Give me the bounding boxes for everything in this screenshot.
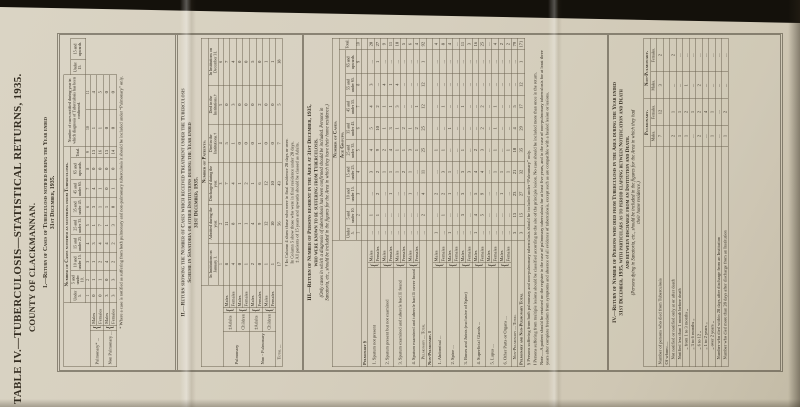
row-died-more-28: Number who died more than 28 days after … xyxy=(722,38,729,367)
group-header-patients: Number of Patients. xyxy=(201,38,208,285)
group-header-age-groups: Age Groups. xyxy=(339,50,346,240)
cell: Pulmonary xyxy=(223,332,249,367)
section4-italic-note2: their home residence.) xyxy=(637,38,642,367)
cell: Pulmonary* ... xyxy=(90,330,103,367)
cell: { xyxy=(381,263,394,268)
col-header: Under 5. xyxy=(71,289,86,303)
section4: IV.—Return of Number of Persons who died… xyxy=(607,35,781,370)
col-header: Under 15. xyxy=(71,60,86,75)
cell: 14 xyxy=(110,146,117,158)
cell: Pulmonary and Non-Pulmonary Total xyxy=(518,240,525,367)
cell: 17 xyxy=(518,96,525,118)
row-nonpulmonary-females: Females332230101400 xyxy=(110,38,117,367)
cell: 0 xyxy=(110,75,117,110)
col-header: 25 and under 35. xyxy=(71,216,86,234)
corner-cell xyxy=(64,303,90,367)
cell: 3. Bones and Joints (exclusive of Spine) xyxy=(459,268,472,367)
cell: Females xyxy=(110,303,117,326)
col-header: 55 and under 65. xyxy=(346,74,356,96)
col-header: 45 and under 55. xyxy=(346,96,356,118)
cell: Non Pulmonary ... xyxy=(103,330,116,367)
cell: 6. Other Parts or Organs ... xyxy=(498,268,511,367)
cell: 1. Sputum not present xyxy=(368,268,381,367)
col-header: 15 and under 25. xyxy=(71,234,86,252)
cell: { xyxy=(90,325,103,330)
col-header: Under 5. xyxy=(346,225,356,240)
cell: { xyxy=(249,308,262,313)
cell: 1 xyxy=(518,50,525,74)
cell: 56 xyxy=(276,204,283,243)
row-total: Total ...1756437518 xyxy=(276,38,283,367)
table-notified-cases-table: Number of Cases notified as suffering fr… xyxy=(64,38,117,367)
cell: { xyxy=(263,308,276,313)
cell: Total ... xyxy=(276,285,283,367)
document-title: TABLE IV.—TUBERCULOSIS—STATISTICAL RETUR… xyxy=(11,11,24,404)
group-header-number-of-cases: Number of Cases. xyxy=(332,38,339,240)
section2-footnote3: ‡ All patients of 15 years and upwards s… xyxy=(295,38,300,367)
cell: { xyxy=(485,263,498,268)
section3: III.—Return of Number of Persons residen… xyxy=(302,35,607,370)
cell: 5. Lupus ... xyxy=(485,268,498,367)
cell: { xyxy=(368,263,381,268)
cell: { xyxy=(498,263,511,268)
cell: ... xyxy=(722,72,729,99)
cell: 0 xyxy=(110,198,117,216)
section2-heading-line3: 31st December, 1935. xyxy=(193,38,199,367)
cell: Children xyxy=(263,313,276,332)
col-header: Admitted during the year. xyxy=(208,204,218,243)
cell: { xyxy=(394,263,407,268)
cell: 3 xyxy=(110,271,117,289)
group-header-notified: Number of Cases notified as suffering fr… xyxy=(64,146,71,302)
col-header: 5 and under 10. xyxy=(346,205,356,226)
col-header: Total. xyxy=(71,146,86,158)
col-header: Died in the Institutions.† xyxy=(208,85,218,124)
header-row: Number of Patients. xyxy=(201,38,208,367)
document-subtitle: COUNTY OF CLACKMANNAN. xyxy=(28,11,38,332)
cell: 0 xyxy=(110,158,117,179)
section3-italic-note2: Sanatoria, etc., should be included in t… xyxy=(325,38,330,367)
cell: 3 xyxy=(110,289,117,303)
cell: Number who died more than 28 days after … xyxy=(722,147,729,367)
cell: 2 xyxy=(722,99,729,126)
table-register-age-groups: Number of Cases.Age Groups.Total.Under 5… xyxy=(332,38,525,367)
cell: 35 xyxy=(518,139,525,161)
cell: 5 xyxy=(276,85,283,124)
section3-footnote1: § Persons suffering from both pulmonary … xyxy=(526,40,532,365)
corner-cell xyxy=(644,147,657,367)
section1-heading-line2: 31st December, 1935. xyxy=(49,33,56,372)
col-header: In Institutions on December 31. xyxy=(208,38,218,85)
cell: { xyxy=(433,263,446,268)
cell: 18 xyxy=(276,38,283,85)
corner-cell xyxy=(332,240,361,367)
section1: Number of Cases notified as suffering fr… xyxy=(60,35,176,370)
cell: Non - Pulmonary xyxy=(249,332,275,367)
table-institution-treatment-table: Number of Patients.In Institutions on Ja… xyxy=(201,38,282,367)
table-notified-cases: Number of Cases notified as suffering fr… xyxy=(64,38,117,367)
cell: 1. Abdominal ... xyxy=(433,268,446,367)
cell: 4. Superficial Glands ... xyxy=(472,268,485,367)
cell: 7 xyxy=(276,124,283,163)
table-frame: Number of Cases notified as suffering fr… xyxy=(58,33,783,372)
cell: 171 xyxy=(518,38,525,50)
table-register-age-groups-table: Number of Cases.Age Groups.Total.Under 5… xyxy=(332,38,525,367)
cell: 3 xyxy=(518,225,525,240)
cell: 29 xyxy=(518,117,525,139)
cell: 15 xyxy=(518,205,525,226)
section1-footnote: * Where a case is notified as suffering … xyxy=(118,38,123,367)
table-deaths-table: Pulmonary.Non-Pulmonary.Males.Females.Ma… xyxy=(643,38,728,367)
group-header-nonpulmonary: Non-Pulmonary. xyxy=(644,38,651,98)
col-header: 15 and upwards. xyxy=(71,38,86,60)
cell: 0 xyxy=(110,110,117,146)
cell: Children xyxy=(236,313,249,332)
cell: { xyxy=(223,308,236,313)
cell: 2 xyxy=(110,234,117,252)
col-header: In Institutions on January 1. xyxy=(208,243,218,285)
cell: ‡Adults xyxy=(223,313,236,332)
cell: 1 xyxy=(722,125,729,146)
cell: ... xyxy=(722,38,729,72)
scanned-document-page: { "page": { "title": "TABLE IV.—TUBERCUL… xyxy=(0,0,800,407)
col-header: 25 and under 35. xyxy=(346,139,356,161)
row-grand-total: Pulmonary and Non-Pulmonary Total3152732… xyxy=(518,38,525,367)
col-header: 45 and under 65. xyxy=(71,179,86,197)
cell: 17 xyxy=(276,243,283,285)
rotated-document-content: TABLE IV.—TUBERCULOSIS—STATISTICAL RETUR… xyxy=(0,11,800,407)
col-header: 5 and under 10. xyxy=(71,271,86,289)
col-header: 10 and under 15. xyxy=(346,183,356,205)
cell: { xyxy=(407,263,420,268)
cell: 3 xyxy=(110,216,117,234)
cell: { xyxy=(472,263,485,268)
group-header-pulmonary: Pulmonary. xyxy=(644,99,651,147)
cell: 3. Sputum examined and tubercle bacilli … xyxy=(394,268,407,367)
cell: 2 xyxy=(110,253,117,271)
header-row: Pulmonary.Non-Pulmonary. xyxy=(644,38,651,367)
col-header: 65 and upwards. xyxy=(71,158,86,179)
col-header: 10 and under 15. xyxy=(71,253,86,271)
header-row: Number of Cases. xyxy=(332,38,339,367)
cell: { xyxy=(103,325,116,330)
cell: 43 xyxy=(276,163,283,205)
cell: { xyxy=(446,263,459,268)
col-header: 15 and under 25. xyxy=(346,161,356,183)
cell: 2. Spine ... xyxy=(446,268,459,367)
col-header: Total. xyxy=(339,38,356,50)
section1-heading: I.—Return of Cases of Tuberculosis notif… xyxy=(42,33,56,372)
header-row: Number of Cases notified as suffering fr… xyxy=(64,38,71,367)
table-deaths: Pulmonary.Non-Pulmonary.Males.Females.Ma… xyxy=(643,38,728,367)
cell: 4. Sputum examined and tubercle bacilli … xyxy=(407,268,420,367)
col-header: 35 and under 45. xyxy=(71,198,86,216)
section3-footnote2: ‖ Persons suffering from multiple lesion… xyxy=(532,40,538,365)
cell: { xyxy=(236,308,249,313)
cell: 32 xyxy=(518,161,525,183)
cell: 12 xyxy=(518,74,525,96)
cell: 1 xyxy=(110,179,117,197)
section1-heading-line1: I.—Return of Cases of Tuberculosis notif… xyxy=(42,33,49,372)
section3-footnote3: Note.—A patient should be retained on th… xyxy=(539,40,550,365)
corner-cell xyxy=(201,285,223,367)
col-header: 35 and under 45. xyxy=(346,117,356,139)
cell: 2. Sputum present but not examined xyxy=(381,268,394,367)
paper-sheet: TABLE IV.—TUBERCULOSIS—STATISTICAL RETUR… xyxy=(0,0,800,407)
cell: ‡Adults xyxy=(249,313,262,332)
group-header-confirmed: Number of cases notified during year in … xyxy=(64,75,86,147)
cell: 27 xyxy=(518,183,525,205)
col-header: Discharged during the year. xyxy=(208,163,218,205)
section2: II.—Return showing the Number of Cases w… xyxy=(176,35,302,370)
cell: { xyxy=(459,263,472,268)
table-institution-treatment: Number of Patients.In Institutions on Ja… xyxy=(201,38,282,367)
col-header: 65 and upwards. xyxy=(346,50,356,74)
col-header: Died in the Institutions.† xyxy=(208,124,218,163)
